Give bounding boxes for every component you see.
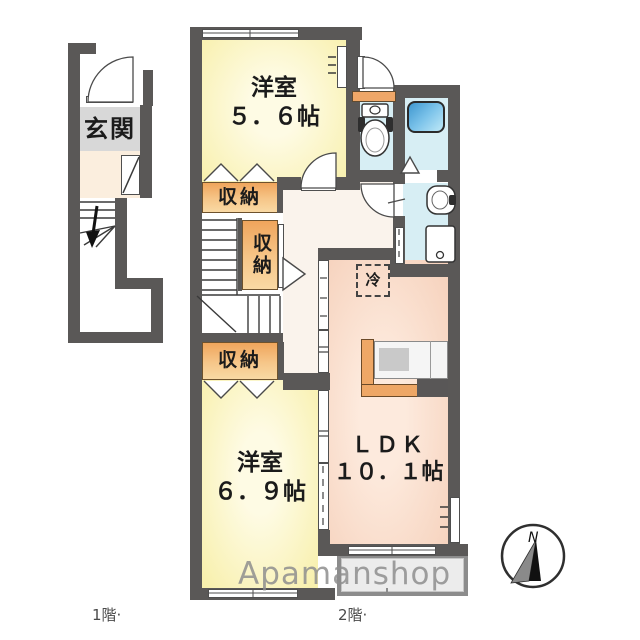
ldk-door-triangle-icon bbox=[283, 258, 305, 290]
compass-icon: N bbox=[502, 525, 564, 587]
slit-window-ticks-ldk bbox=[440, 507, 448, 527]
floorplan-canvas: 冷 bbox=[0, 0, 640, 640]
sink-icon bbox=[427, 186, 456, 214]
shoe-cabinet-diagonal bbox=[123, 157, 139, 193]
storage-middle-label: 収納 bbox=[242, 222, 278, 288]
storage-top-bifold-icon bbox=[204, 164, 274, 181]
floor2-label: 2階· bbox=[338, 604, 367, 625]
storage-bottom-label: 収納 bbox=[202, 344, 278, 378]
washing-machine-icon bbox=[426, 226, 455, 262]
floor1-label: 1階· bbox=[92, 604, 121, 625]
refrigerator-label: 冷 bbox=[365, 271, 380, 290]
storage-top-label: 収納 bbox=[202, 183, 278, 212]
bedroom-top-label: 洋室 ５．６帖 bbox=[202, 70, 346, 136]
ldk-size: １０．１帖 bbox=[333, 459, 443, 487]
storage-bottom-bifold-icon bbox=[204, 381, 274, 398]
bedroom-top-size: ５．６帖 bbox=[228, 103, 320, 132]
refrigerator-space: 冷 bbox=[356, 264, 390, 297]
ldk-label: ＬＤＫ １０．１帖 bbox=[329, 428, 448, 490]
bath-door-triangle-icon bbox=[401, 157, 419, 173]
bedroom-bottom-label: 洋室 ６．９帖 bbox=[202, 446, 318, 510]
toilet-icon bbox=[358, 104, 393, 156]
watermark: Apamanshop bbox=[238, 556, 451, 592]
washroom-door-swing-icon bbox=[361, 184, 394, 217]
front-door-swing-icon bbox=[88, 57, 133, 102]
bedroom-top-name: 洋室 bbox=[251, 74, 297, 103]
bedroom-bottom-size: ６．９帖 bbox=[214, 478, 306, 507]
compass-north-label: N bbox=[528, 530, 539, 546]
ldk-name: ＬＤＫ bbox=[351, 432, 426, 460]
bedroom-bottom-name: 洋室 bbox=[237, 449, 283, 478]
toilet-door-swing-icon bbox=[363, 57, 394, 88]
bedroom-top-door-swing-icon bbox=[301, 153, 336, 188]
entrance-label: 玄関 bbox=[80, 107, 140, 151]
